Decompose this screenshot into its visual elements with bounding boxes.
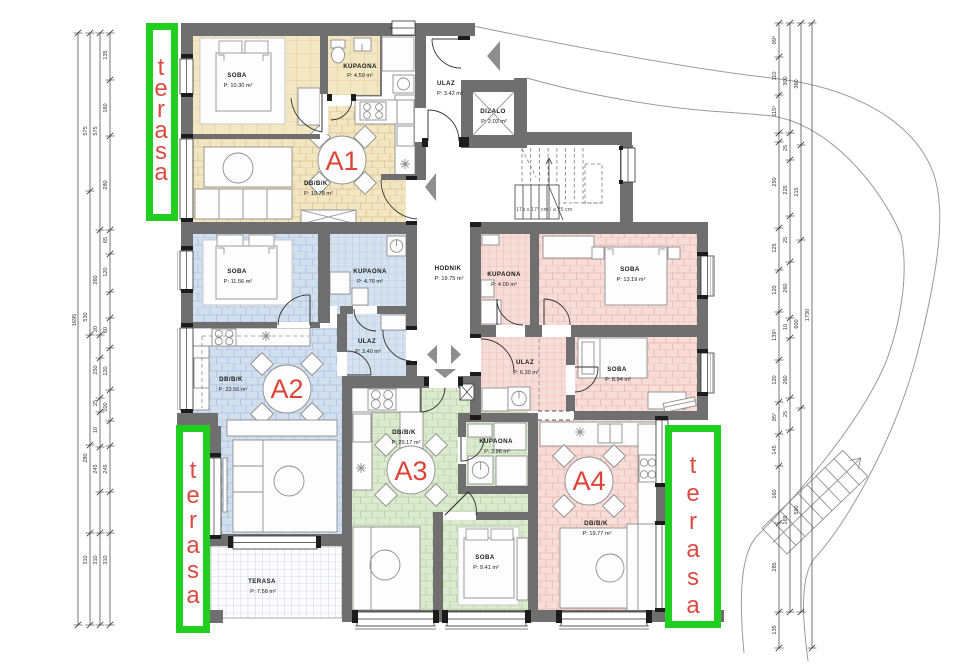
svg-text:a: a <box>686 536 700 563</box>
svg-text:a: a <box>186 532 200 559</box>
svg-text:65: 65 <box>103 237 109 243</box>
svg-text:310: 310 <box>83 555 89 564</box>
svg-text:125: 125 <box>772 243 778 252</box>
svg-text:KUPAONA: KUPAONA <box>487 271 521 278</box>
svg-text:245: 245 <box>103 464 109 473</box>
svg-text:P: 20.17 m²: P: 20.17 m² <box>392 440 421 446</box>
svg-text:e: e <box>186 482 199 509</box>
svg-text:60: 60 <box>103 327 109 333</box>
svg-text:10: 10 <box>93 427 99 433</box>
svg-text:575: 575 <box>83 126 89 135</box>
svg-text:e: e <box>686 480 699 507</box>
svg-text:P: 9.41 m²: P: 9.41 m² <box>473 565 499 571</box>
svg-text:575: 575 <box>93 126 99 135</box>
svg-text:KUPAONA: KUPAONA <box>353 268 387 275</box>
svg-text:SOBA: SOBA <box>227 72 247 79</box>
svg-text:ULAZ: ULAZ <box>437 80 455 87</box>
svg-text:120: 120 <box>772 285 778 294</box>
svg-text:260: 260 <box>783 375 789 384</box>
svg-text:HODNIK: HODNIK <box>435 265 462 272</box>
svg-text:160: 160 <box>772 489 778 498</box>
svg-text:A1: A1 <box>325 146 358 176</box>
svg-text:P: 19.77 m²: P: 19.77 m² <box>583 531 612 537</box>
svg-text:A4: A4 <box>572 466 605 496</box>
svg-text:280: 280 <box>83 453 89 462</box>
svg-text:115⁵: 115⁵ <box>771 105 778 116</box>
svg-text:ULAZ: ULAZ <box>358 338 376 345</box>
svg-text:25: 25 <box>783 411 789 417</box>
svg-text:160: 160 <box>103 103 109 112</box>
svg-text:260: 260 <box>93 275 99 284</box>
svg-text:25: 25 <box>783 145 789 151</box>
svg-text:P: 19.78 m²: P: 19.78 m² <box>304 191 333 197</box>
svg-text:DB/B/K: DB/B/K <box>584 520 608 527</box>
svg-text:r: r <box>189 507 197 534</box>
svg-text:17a x 17⁵ cm / a 25 cm: 17a x 17⁵ cm / a 25 cm <box>516 206 573 213</box>
svg-text:20: 20 <box>93 326 99 332</box>
svg-text:95⁵: 95⁵ <box>771 413 778 422</box>
svg-text:SOBA: SOBA <box>620 266 640 273</box>
svg-text:165: 165 <box>783 515 789 524</box>
svg-text:145: 145 <box>772 445 778 454</box>
svg-text:DB/B/K: DB/B/K <box>304 180 328 187</box>
svg-text:120: 120 <box>772 375 778 384</box>
svg-text:P: 4.76 m²: P: 4.76 m² <box>357 279 383 285</box>
svg-text:P: 6.30 m²: P: 6.30 m² <box>513 370 539 376</box>
svg-text:P: 3.96 m²: P: 3.96 m² <box>484 449 510 455</box>
svg-text:590: 590 <box>794 505 800 514</box>
svg-text:s: s <box>187 557 199 584</box>
svg-text:SOBA: SOBA <box>607 366 627 373</box>
svg-text:P: 3.42 m²: P: 3.42 m² <box>437 91 463 97</box>
svg-text:P: 23.56 m²: P: 23.56 m² <box>219 387 248 393</box>
svg-text:P: 3.40 m²: P: 3.40 m² <box>355 349 381 355</box>
svg-text:250: 250 <box>93 365 99 374</box>
svg-text:1730: 1730 <box>805 309 811 321</box>
svg-text:TERASA: TERASA <box>248 578 276 585</box>
svg-text:310: 310 <box>93 555 99 564</box>
svg-text:P: 13.19 m²: P: 13.19 m² <box>617 277 646 283</box>
svg-text:a: a <box>186 582 200 609</box>
svg-text:135: 135 <box>772 625 778 634</box>
svg-text:215: 215 <box>794 187 800 196</box>
svg-text:310: 310 <box>103 555 109 564</box>
svg-text:a: a <box>154 159 168 186</box>
svg-text:300: 300 <box>783 76 789 85</box>
svg-text:25: 25 <box>783 237 789 243</box>
svg-text:25: 25 <box>93 400 99 406</box>
svg-text:P: 19.75 m²: P: 19.75 m² <box>435 276 464 282</box>
svg-text:280: 280 <box>103 180 109 189</box>
svg-text:120: 120 <box>103 366 109 375</box>
svg-text:r: r <box>689 508 697 535</box>
svg-text:250: 250 <box>772 177 778 186</box>
svg-text:P: 11.56 m²: P: 11.56 m² <box>224 279 253 285</box>
svg-text:110: 110 <box>772 72 778 81</box>
svg-text:a: a <box>686 592 700 619</box>
svg-text:120: 120 <box>103 267 109 276</box>
svg-text:P: 4.59 m²: P: 4.59 m² <box>347 73 373 79</box>
svg-text:285: 285 <box>772 562 778 571</box>
svg-text:10: 10 <box>783 324 789 330</box>
svg-text:P: 10.30 m²: P: 10.30 m² <box>224 83 253 89</box>
svg-text:t: t <box>190 457 197 484</box>
svg-text:100: 100 <box>103 402 109 411</box>
svg-text:135: 135 <box>103 50 109 59</box>
svg-text:DB/B/K: DB/B/K <box>219 376 243 383</box>
svg-text:s: s <box>687 564 699 591</box>
svg-text:99⁵: 99⁵ <box>771 36 778 45</box>
svg-text:260: 260 <box>783 283 789 292</box>
svg-text:P: 8.94 m²: P: 8.94 m² <box>605 377 631 383</box>
svg-text:1695: 1695 <box>72 314 78 326</box>
svg-text:ULAZ: ULAZ <box>516 359 534 366</box>
svg-text:139⁵: 139⁵ <box>771 329 778 341</box>
svg-text:A2: A2 <box>270 374 303 404</box>
svg-text:245: 245 <box>93 464 99 473</box>
svg-text:t: t <box>690 452 697 479</box>
svg-text:DB/B/K: DB/B/K <box>392 429 416 436</box>
svg-text:KUPAONA: KUPAONA <box>479 438 513 445</box>
svg-text:360: 360 <box>794 79 800 88</box>
svg-text:SOBA: SOBA <box>227 268 247 275</box>
svg-text:P: 7.58 m²: P: 7.58 m² <box>250 589 276 595</box>
svg-text:530: 530 <box>83 312 89 321</box>
svg-text:A3: A3 <box>394 456 427 486</box>
svg-text:225: 225 <box>783 185 789 194</box>
svg-text:KUPAONA: KUPAONA <box>343 63 377 70</box>
svg-text:SOBA: SOBA <box>475 554 495 561</box>
svg-text:600: 600 <box>794 319 800 328</box>
svg-text:P: 4.00 m²: P: 4.00 m² <box>491 282 517 288</box>
